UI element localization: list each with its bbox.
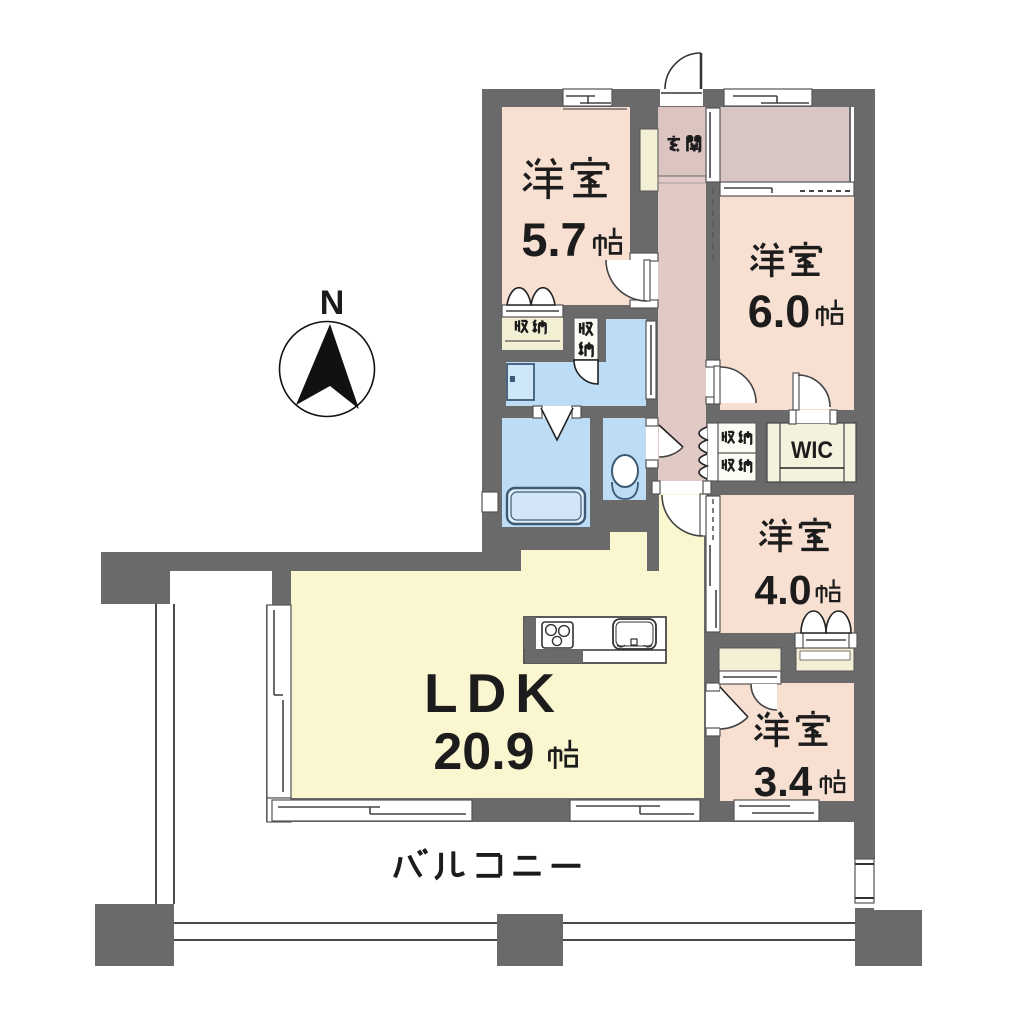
svg-text:4.0: 4.0 [755,567,812,613]
svg-text:20.9: 20.9 [433,723,534,781]
svg-text:3.4: 3.4 [754,758,813,805]
svg-text:5.7: 5.7 [521,213,586,266]
svg-text:LDK: LDK [424,662,564,724]
svg-text:N: N [320,284,345,322]
svg-text:6.0: 6.0 [748,286,811,337]
svg-text:WIC: WIC [791,437,833,464]
